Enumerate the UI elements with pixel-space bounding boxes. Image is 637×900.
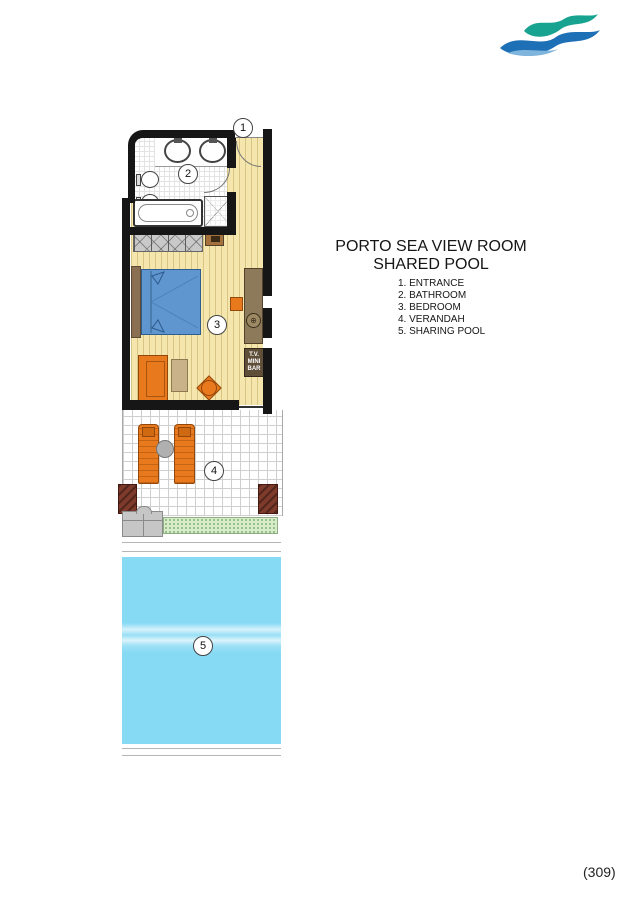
wall-left-upper <box>128 155 135 203</box>
sink-icon <box>199 139 226 163</box>
side-table <box>171 359 188 392</box>
steps <box>122 511 163 537</box>
bed <box>141 269 201 335</box>
wall-bath-right-upper <box>227 138 236 168</box>
wall-bath-bottom <box>128 227 235 235</box>
desk-item <box>211 236 220 242</box>
wall-top <box>150 130 235 138</box>
toilet-icon <box>141 171 159 188</box>
step-divider <box>143 512 144 536</box>
stool <box>230 297 243 311</box>
floor-plan: ⊕ T.V. MINI BAR 1 <box>0 0 637 900</box>
sliding-door-line <box>239 406 263 408</box>
faucet-icon <box>209 138 217 143</box>
pillar <box>118 484 137 514</box>
sun-lounger <box>138 424 159 484</box>
lounger-headrest <box>178 427 191 437</box>
marker-bedroom: 3 <box>207 315 227 335</box>
marker-bathroom: 2 <box>178 164 198 184</box>
sofa <box>138 355 168 402</box>
minibar-label: BAR <box>245 366 263 373</box>
tv-label: T.V. <box>245 352 263 359</box>
wall-right-window <box>263 296 272 308</box>
lounger-headrest <box>142 427 155 437</box>
bathtub <box>133 199 203 227</box>
faucet-icon <box>174 138 182 143</box>
sofa-seat <box>146 361 165 397</box>
wall-right-window <box>263 338 272 348</box>
planter <box>163 517 278 534</box>
walkway-line <box>122 551 281 552</box>
wall-bedroom-bottom-stub <box>263 400 272 410</box>
bed-linen-lines <box>142 270 200 334</box>
wall-right <box>263 129 272 414</box>
coffee-table-top <box>201 380 217 396</box>
lamp-icon: ⊕ <box>246 313 261 328</box>
page-number: (309) <box>583 864 616 880</box>
wall-bedroom-bottom <box>122 400 239 410</box>
walkway-line <box>122 542 281 543</box>
walkway-line <box>122 755 281 756</box>
minibar-label: MINI <box>245 359 263 366</box>
sink-icon <box>164 139 191 163</box>
patio-table <box>156 440 174 458</box>
walkway-line <box>122 748 281 749</box>
bathtub-drain <box>186 209 194 217</box>
pillar <box>258 484 278 514</box>
tv-minibar-cabinet: T.V. MINI BAR <box>244 348 264 377</box>
step-dome <box>136 506 152 514</box>
wardrobe <box>244 268 263 344</box>
marker-verandah: 4 <box>204 461 224 481</box>
marker-pool: 5 <box>193 636 213 656</box>
bed-headboard <box>131 266 141 338</box>
page: porto elounda GOLF & SPA RESORT PORTO SE… <box>0 0 637 900</box>
sun-lounger <box>174 424 195 484</box>
marker-entrance: 1 <box>233 118 253 138</box>
